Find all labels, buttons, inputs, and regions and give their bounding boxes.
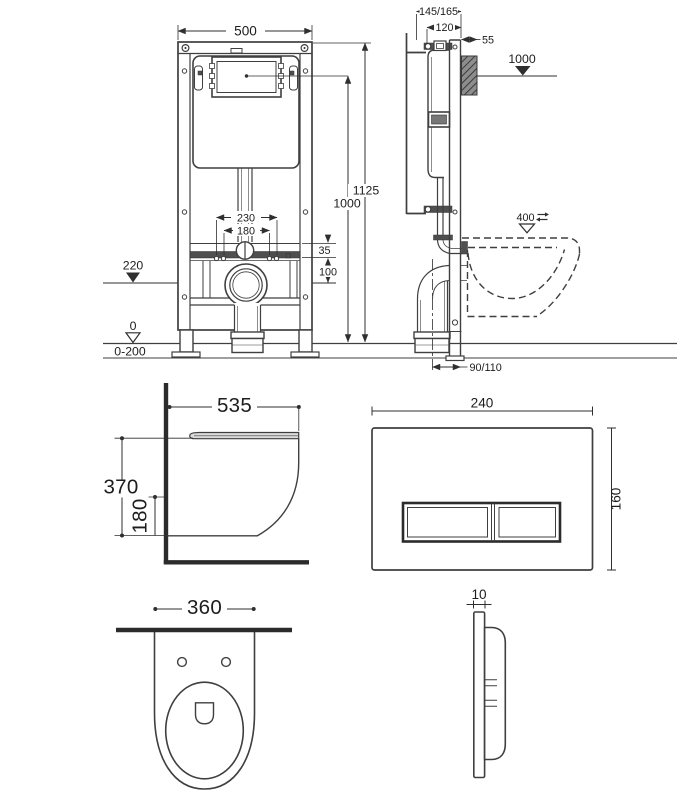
level-panel-height: 1000 [478, 52, 558, 76]
technical-drawing-sheet: 500 230 180 35 100 1000 [0, 0, 684, 800]
panel-height-label: 1000 [333, 197, 361, 211]
frame-width-label: 500 [234, 24, 257, 39]
pan-body-profile [167, 439, 299, 536]
level-triangle-open-icon [126, 333, 140, 343]
cistern-side [428, 41, 450, 178]
mounting-hole-icon [222, 658, 231, 667]
plate-thickness-label: 10 [471, 587, 487, 602]
pan-mount-plate [462, 242, 468, 255]
view-flush-plate-side: 10 [467, 587, 506, 778]
depth-label: 145/165 [419, 6, 458, 18]
plate-offset-label: 55 [482, 35, 494, 47]
drain-elbow-side [414, 259, 467, 372]
dim-outlet-drop: 100 [316, 259, 340, 283]
level-triangle-filled-icon [515, 66, 531, 76]
adjustable-height-icon [536, 212, 549, 221]
pan-depth-label: 535 [217, 394, 252, 417]
access-panel [210, 57, 284, 97]
dim-plate-thickness: 10 [467, 587, 492, 609]
label-tag [231, 49, 242, 54]
rail-foot-plate [446, 356, 464, 361]
dim-outlet-offset: 90/110 [433, 362, 502, 374]
flush-plate-recess-hatch [462, 56, 478, 95]
dim-plate-height: 160 [607, 428, 624, 570]
wc-installation-drawing: 500 230 180 35 100 1000 [0, 0, 684, 800]
total-height-label: 1125 [353, 184, 380, 198]
plate-width-label: 240 [471, 396, 494, 411]
bracket-offset-label: 35 [318, 245, 330, 257]
plate-height-label: 160 [609, 487, 624, 510]
floor-level-label: 0 [130, 319, 137, 333]
dim-frame-width: 500 [178, 24, 312, 41]
flush-bend [434, 178, 468, 255]
flush-inlet [196, 703, 214, 724]
pan-underside-label: 180 [129, 498, 152, 533]
water-connection [236, 242, 253, 259]
large-flush-button [408, 508, 488, 538]
panel-height-side-label: 1000 [508, 52, 536, 66]
view-pan-top: 360 [116, 596, 292, 789]
level-outlet-height: 220 [123, 259, 144, 283]
dim-pan-underside: 180 [129, 495, 167, 536]
rim-height-label: 400 [516, 212, 534, 224]
dim-plate-width: 240 [372, 396, 593, 416]
toilet-seat-profile [190, 433, 299, 439]
view-frame-side: 145/165 120 55 1000 400 [407, 5, 580, 374]
dim-pan-width: 360 [153, 596, 255, 619]
pan-dashed-profile [462, 238, 580, 317]
outlet-height-label: 220 [123, 259, 144, 273]
view-pan-side-profile: 535 370 180 [101, 383, 310, 564]
bowl-rim [166, 682, 244, 779]
frame-depth-label: 120 [435, 22, 453, 34]
outlet-drop-label: 100 [319, 267, 337, 279]
level-triangle-filled-icon [126, 273, 140, 283]
cistern-clip [290, 66, 298, 90]
dim-panel-height: 1000 [330, 76, 366, 342]
cistern-clip [195, 66, 203, 90]
anchor-bolt-icon [425, 207, 431, 213]
outlet-offset-label: 90/110 [470, 362, 502, 374]
small-flush-button [499, 508, 556, 538]
pan-width-label: 360 [187, 596, 222, 619]
floor-range-label: 0-200 [114, 345, 146, 359]
level-rim-height: 400 [516, 212, 549, 233]
anchor-bolt-icon [425, 44, 431, 50]
flush-buttons [403, 503, 560, 542]
view-flush-plate-front: 240 160 [372, 396, 624, 571]
button-housing-side [485, 628, 506, 760]
view-frame-front: 500 230 180 35 100 1000 [114, 24, 383, 359]
panel-center-point [245, 74, 248, 77]
dim-plate-offset: 55 [462, 35, 495, 47]
fixing-inner-label: 180 [237, 226, 255, 238]
fixing-outer-label: 230 [237, 213, 255, 225]
mounting-hole-icon [178, 658, 187, 667]
pan-height-label: 370 [103, 476, 138, 499]
flush-plate-outline [372, 428, 593, 570]
plate-panel-side [474, 612, 485, 778]
level-triangle-open-icon [520, 224, 535, 233]
level-floor-zero: 0 [126, 319, 140, 343]
dim-pan-depth: 535 [168, 394, 301, 431]
drain-cap [231, 332, 264, 353]
